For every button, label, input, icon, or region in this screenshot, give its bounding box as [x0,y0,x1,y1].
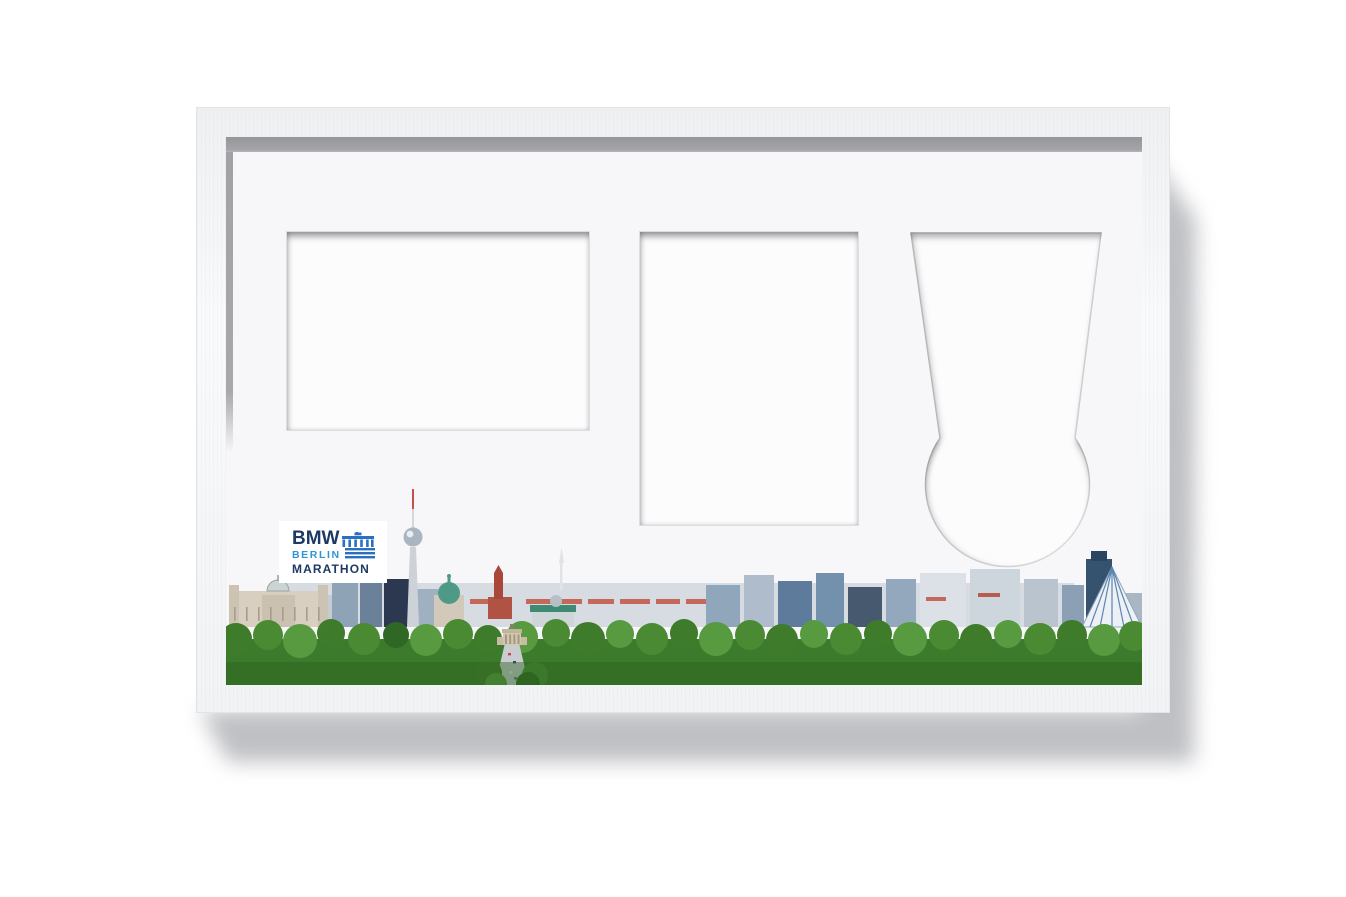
stripes-icon [345,548,375,559]
frame-lip-shadow-left [226,152,233,452]
berlin-cathedral-icon [434,574,464,627]
logo-text-bmw: BMW [292,529,339,548]
bmw-berlin-marathon-logo: BMW BERLIN [279,521,387,583]
medal-opening [906,229,1106,569]
mat-board: BMW BERLIN [226,137,1142,685]
brandenburg-gate-logo-icon [342,532,374,547]
product-photo-scene: BMW BERLIN [0,0,1346,897]
logo-text-marathon: MARATHON [292,563,370,575]
frame-lip-shadow-top [226,137,1142,152]
foreground-trees [226,660,1142,685]
picture-frame: BMW BERLIN [196,107,1170,713]
logo-text-berlin: BERLIN [292,550,341,561]
portrait-opening [639,231,859,526]
landscape-photo-opening [286,231,590,431]
